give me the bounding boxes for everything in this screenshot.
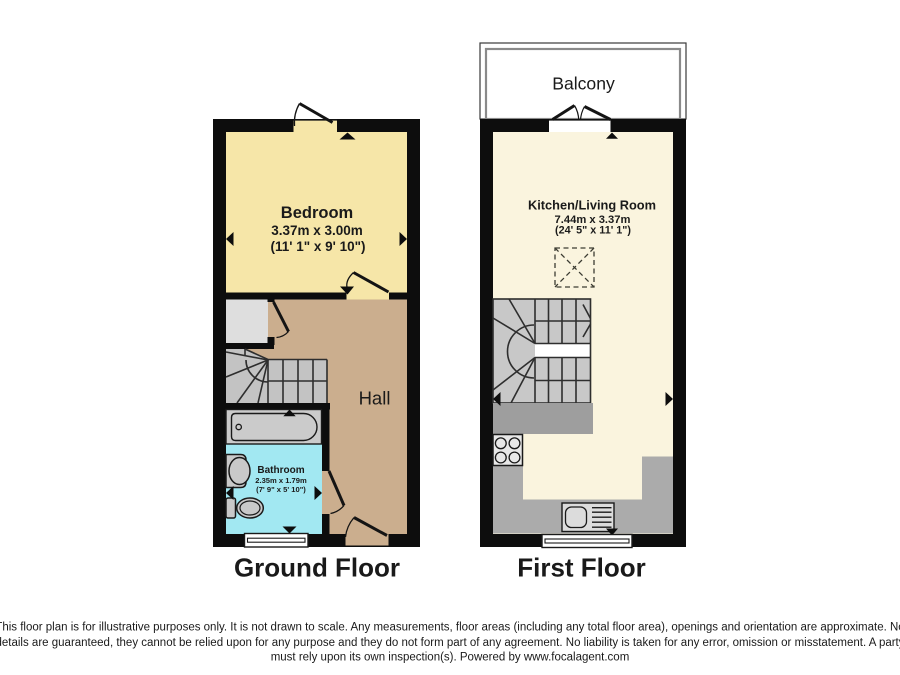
svg-text:Bedroom: Bedroom <box>281 204 353 222</box>
svg-text:Kitchen/Living Room: Kitchen/Living Room <box>528 198 656 213</box>
svg-text:details are guaranteed, they c: details are guaranteed, they cannot be r… <box>0 637 900 649</box>
svg-text:This floor plan is for illustr: This floor plan is for illustrative purp… <box>0 622 900 634</box>
svg-text:Ground Floor: Ground Floor <box>234 553 400 583</box>
svg-text:(7' 9" x 5' 10"): (7' 9" x 5' 10") <box>256 485 306 494</box>
svg-text:(11' 1" x 9' 10"): (11' 1" x 9' 10") <box>270 239 365 254</box>
svg-text:3.37m x 3.00m: 3.37m x 3.00m <box>271 223 363 238</box>
svg-text:First Floor: First Floor <box>517 553 646 583</box>
svg-text:must rely upon its own inspect: must rely upon its own inspection(s). Po… <box>271 652 630 664</box>
svg-text:Bathroom: Bathroom <box>257 465 304 476</box>
svg-text:(24' 5" x 11' 1"): (24' 5" x 11' 1") <box>555 225 631 237</box>
svg-text:Hall: Hall <box>359 388 391 409</box>
svg-text:2.35m x 1.79m: 2.35m x 1.79m <box>255 476 307 485</box>
svg-text:Balcony: Balcony <box>552 74 615 94</box>
